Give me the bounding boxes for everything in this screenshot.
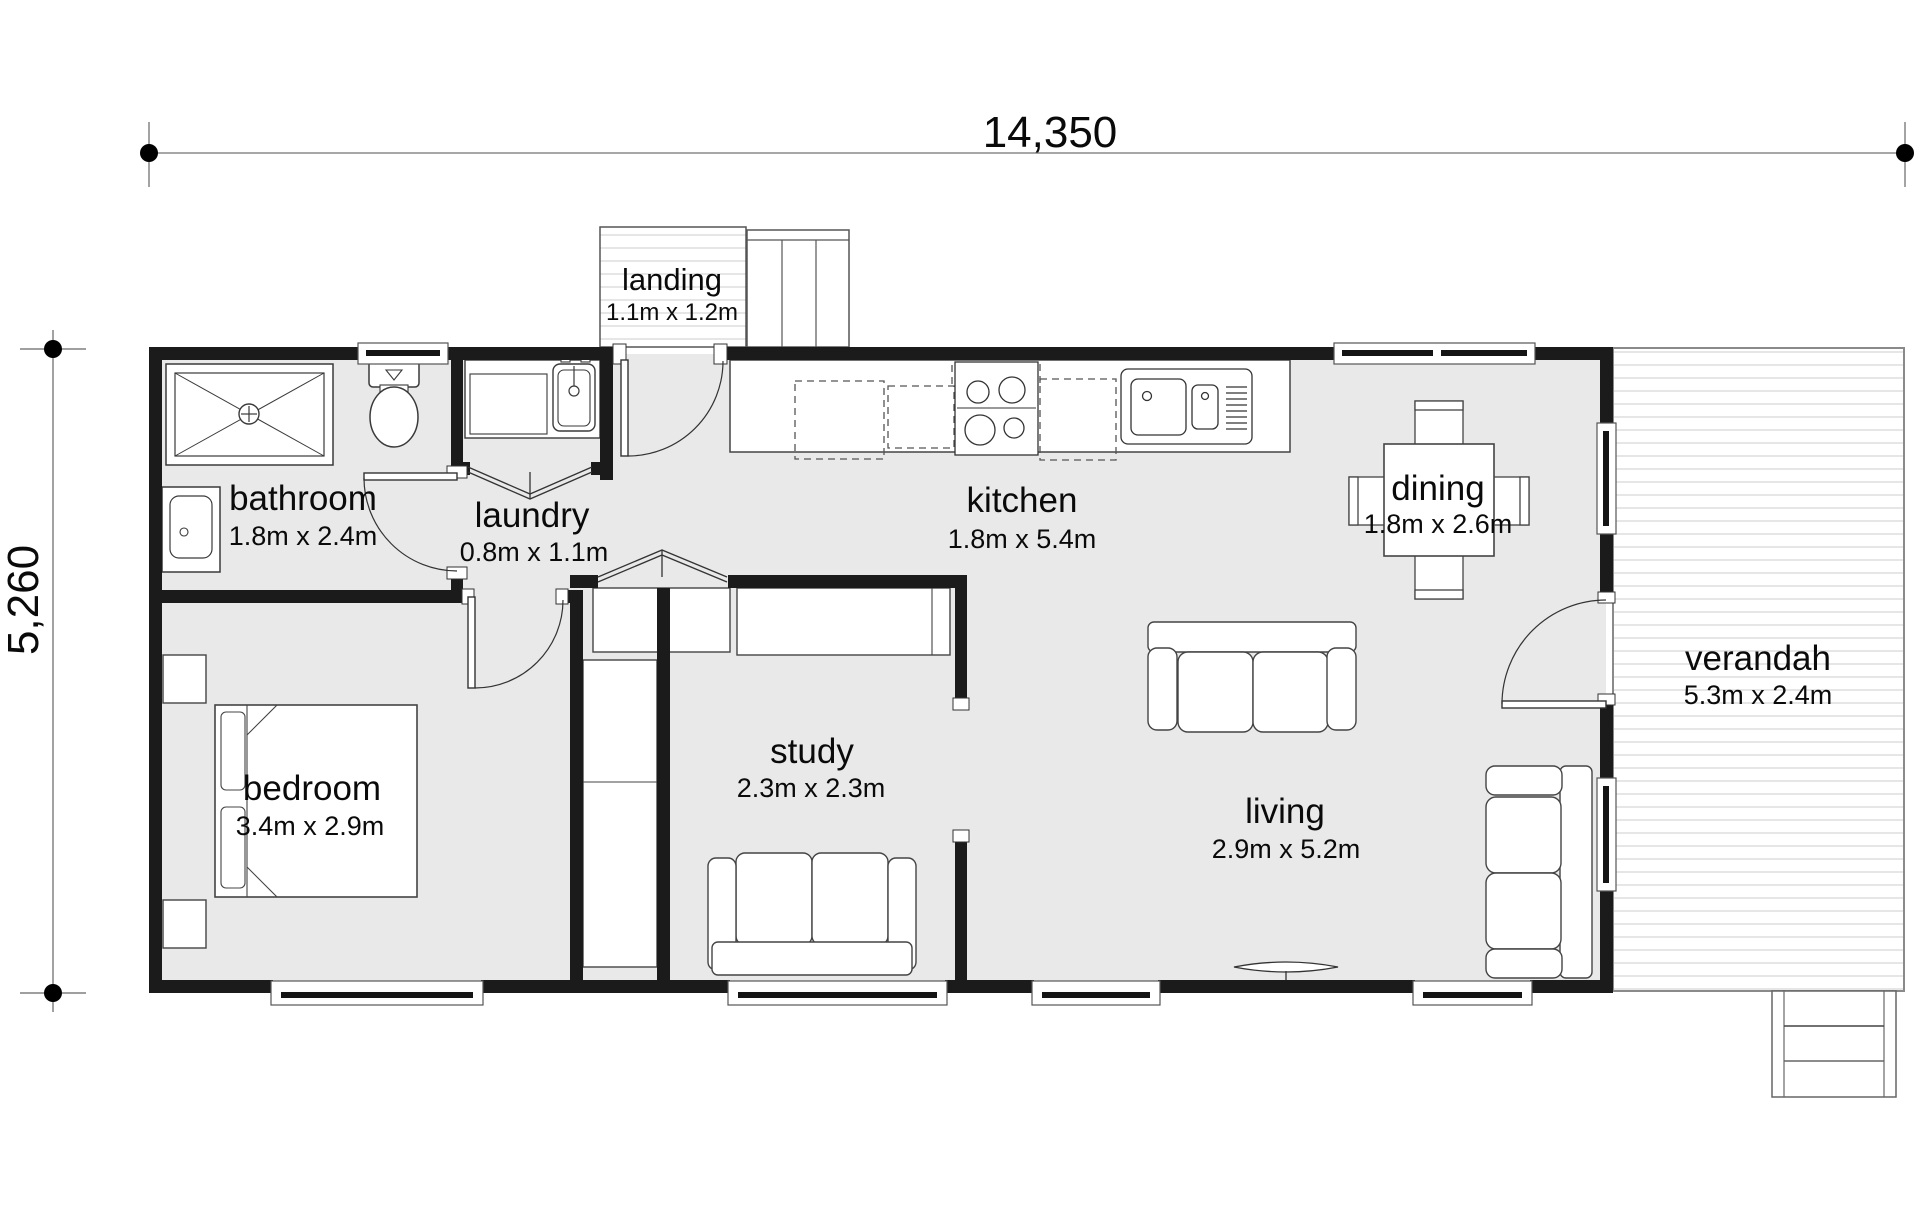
room-label-dining: dining: [1391, 469, 1484, 508]
room-size-landing: 1.1m x 1.2m: [606, 299, 738, 326]
toilet: [369, 361, 419, 447]
kitchen-counter: [730, 356, 1290, 460]
floor-plan-page: 14,350 5,260 landing 1.1m x 1.2m bathroo…: [0, 0, 1920, 1210]
room-label-kitchen: kitchen: [967, 481, 1078, 520]
window: [1413, 981, 1532, 1005]
window: [1597, 778, 1616, 891]
room-size-study: 2.3m x 2.3m: [737, 773, 886, 803]
dimension-left: 5,260: [0, 330, 86, 1012]
stairs: [747, 230, 849, 347]
room-label-verandah: verandah: [1685, 639, 1831, 678]
dim-width-label: 14,350: [983, 108, 1118, 157]
floor-plan: 14,350 5,260 landing 1.1m x 1.2m bathroo…: [0, 0, 1920, 1210]
room-label-living: living: [1245, 792, 1325, 831]
window: [728, 981, 947, 1005]
room-label-landing: landing: [622, 262, 722, 297]
sofa-study: [708, 853, 916, 975]
verandah-steps: [1772, 991, 1896, 1097]
window: [1334, 343, 1535, 364]
room-size-verandah: 5.3m x 2.4m: [1684, 680, 1833, 710]
hall-closet: [583, 660, 657, 967]
shower: [166, 364, 333, 465]
room-size-kitchen: 1.8m x 5.4m: [948, 524, 1097, 554]
dim-height-label: 5,260: [0, 545, 48, 655]
room-size-living: 2.9m x 5.2m: [1212, 834, 1361, 864]
vanity: [162, 487, 220, 572]
nightstand: [163, 655, 206, 703]
kitchen-sink: [1121, 369, 1252, 444]
room-size-dining: 1.8m x 2.6m: [1364, 509, 1513, 539]
room-size-bathroom: 1.8m x 2.4m: [229, 521, 378, 551]
window: [1597, 423, 1616, 534]
window: [271, 981, 483, 1005]
cooktop: [955, 362, 1038, 455]
room-label-bathroom: bathroom: [229, 479, 377, 518]
study-desk: [737, 588, 950, 655]
sofa-wall: [1486, 766, 1592, 978]
sofa-living: [1148, 622, 1356, 732]
dimension-top: 14,350: [140, 108, 1914, 187]
window: [358, 343, 448, 364]
nightstand: [163, 900, 206, 948]
window: [1032, 981, 1160, 1005]
room-label-bedroom: bedroom: [243, 769, 381, 808]
room-label-laundry: laundry: [475, 496, 590, 535]
room-label-study: study: [770, 732, 854, 771]
room-size-bedroom: 3.4m x 2.9m: [236, 811, 385, 841]
room-size-laundry: 0.8m x 1.1m: [460, 537, 609, 567]
